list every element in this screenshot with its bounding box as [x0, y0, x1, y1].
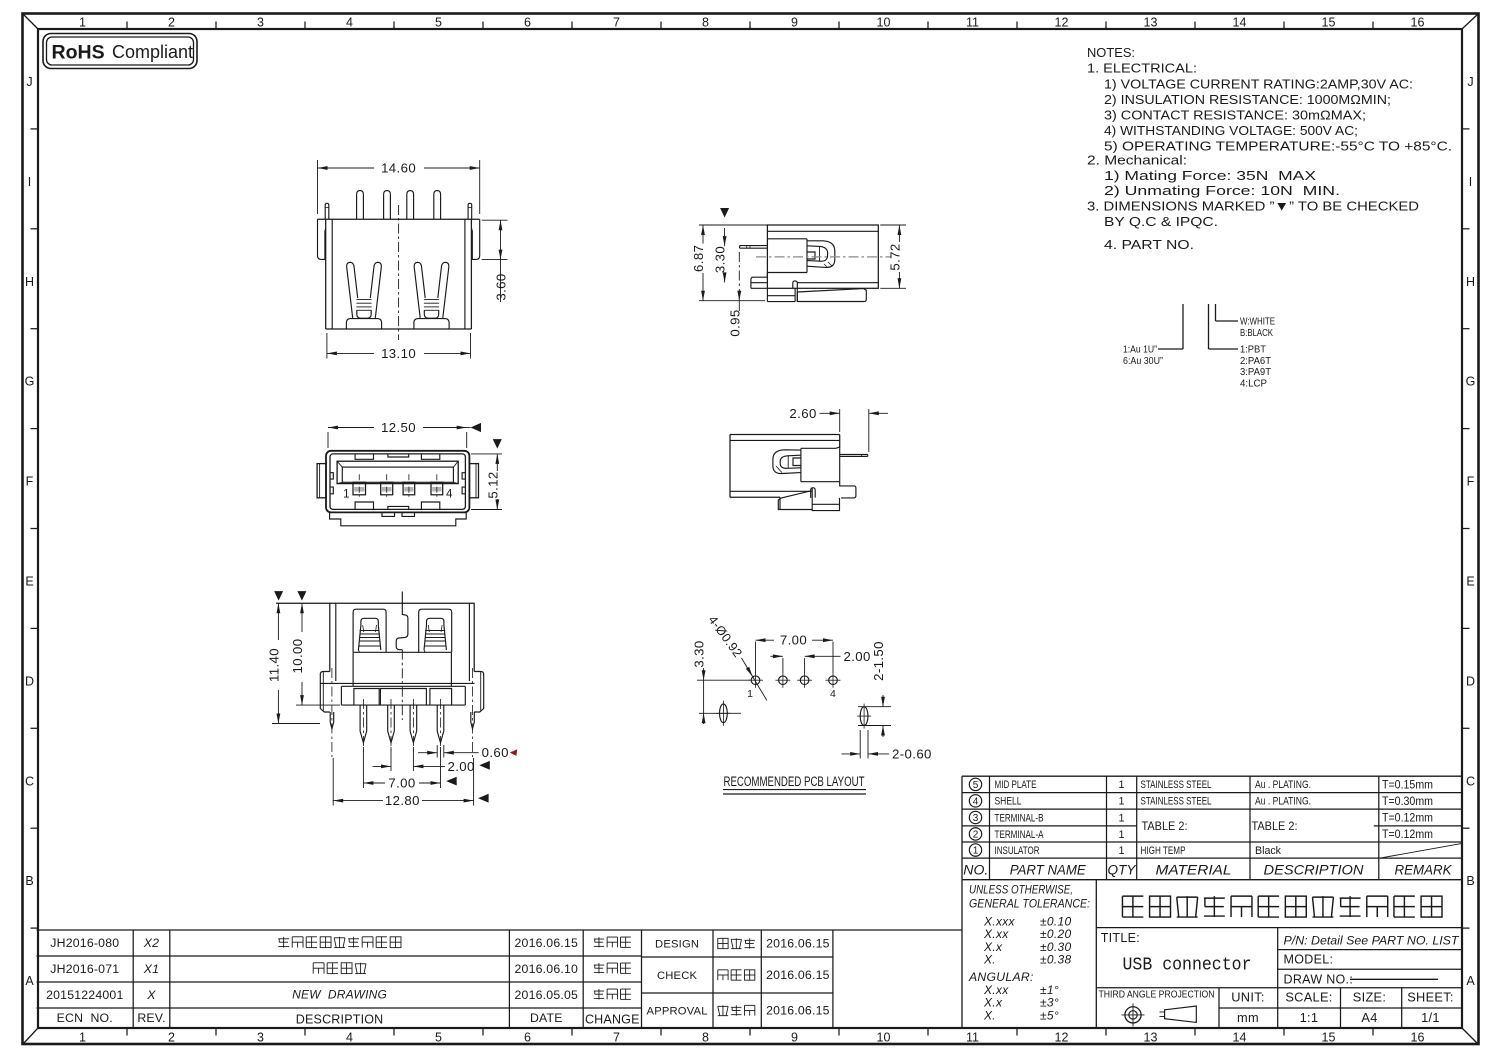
svg-text:2) INSULATION RESISTANCE: 1000: 2) INSULATION RESISTANCE: 1000MΩMIN;: [1104, 92, 1391, 107]
svg-text:H: H: [1466, 275, 1475, 289]
svg-text:2. Mechanical:: 2. Mechanical:: [1087, 153, 1187, 168]
svg-text:D: D: [25, 674, 34, 688]
svg-text:7.00: 7.00: [388, 776, 415, 791]
svg-text:F: F: [26, 475, 34, 489]
svg-text:NEW DRAWING: NEW DRAWING: [292, 987, 387, 1001]
svg-text:3.30: 3.30: [713, 246, 728, 273]
svg-text:12: 12: [1055, 16, 1069, 30]
svg-text:PART NAME: PART NAME: [1010, 863, 1087, 878]
svg-text:20151224001: 20151224001: [46, 988, 123, 1002]
svg-text:0.95: 0.95: [727, 309, 742, 336]
svg-text:12.50: 12.50: [381, 420, 416, 435]
svg-text:4: 4: [830, 688, 836, 700]
svg-text:8: 8: [702, 1031, 709, 1045]
svg-text:6: 6: [524, 16, 531, 30]
svg-text:MID PLATE: MID PLATE: [995, 779, 1037, 791]
svg-text:ECN NO.: ECN NO.: [57, 1011, 113, 1025]
svg-text:2:PA6T: 2:PA6T: [1240, 356, 1271, 367]
svg-text:P/N: Detail See PART NO. LIST: P/N: Detail See PART NO. LIST: [1284, 933, 1460, 947]
svg-text:UNIT:: UNIT:: [1231, 989, 1265, 1004]
svg-text:GENERAL TOLERANCE:: GENERAL TOLERANCE:: [969, 897, 1090, 911]
svg-text:5: 5: [973, 780, 979, 791]
svg-text:7.00: 7.00: [780, 633, 807, 648]
svg-text:2016.06.15: 2016.06.15: [766, 968, 830, 982]
svg-text:REV.: REV.: [137, 1011, 165, 1025]
svg-text:REMARK: REMARK: [1395, 863, 1453, 878]
svg-text:T=0.15mm: T=0.15mm: [1382, 779, 1433, 791]
svg-text:D: D: [1466, 674, 1475, 688]
svg-text:13: 13: [1144, 16, 1158, 30]
svg-text:3. DIMENSIONS MARKED ”▼” TO BE: 3. DIMENSIONS MARKED ”▼” TO BE CHECKED: [1087, 199, 1419, 214]
svg-text:10.00: 10.00: [290, 638, 305, 673]
svg-text:I: I: [1469, 175, 1472, 189]
svg-text:1:PBT: 1:PBT: [1240, 345, 1266, 356]
svg-text:5: 5: [435, 16, 442, 30]
svg-text:14.60: 14.60: [381, 161, 416, 176]
svg-text:10: 10: [877, 1031, 891, 1045]
svg-text:STAINLESS STEEL: STAINLESS STEEL: [1141, 796, 1212, 808]
svg-text:1: 1: [1118, 845, 1124, 857]
svg-text:W:WHITE: W:WHITE: [1240, 317, 1275, 328]
svg-text:2016.05.05: 2016.05.05: [515, 988, 579, 1002]
svg-text:1: 1: [1118, 812, 1124, 824]
svg-text:3) CONTACT RESISTANCE: 30mΩMAX: 3) CONTACT RESISTANCE: 30mΩMAX;: [1104, 108, 1366, 123]
svg-text:2) Unmating Force: 10N MIN.: 2) Unmating Force: 10N MIN.: [1104, 183, 1340, 198]
svg-text:11: 11: [966, 16, 979, 30]
svg-text:T=0.12mm: T=0.12mm: [1382, 813, 1433, 825]
svg-text:TABLE 2:: TABLE 2:: [1142, 821, 1188, 833]
svg-text:3:PA9T: 3:PA9T: [1240, 367, 1271, 378]
svg-text:Compliant: Compliant: [112, 42, 193, 62]
svg-text:4. PART NO.: 4. PART NO.: [1104, 237, 1194, 252]
svg-text:TERMINAL-A: TERMINAL-A: [995, 829, 1045, 841]
svg-text:11.40: 11.40: [266, 648, 281, 682]
svg-text:2-1.50: 2-1.50: [871, 641, 886, 681]
svg-text:3: 3: [257, 16, 264, 30]
svg-text:2-0.60: 2-0.60: [892, 746, 932, 761]
svg-text:SHEET:: SHEET:: [1407, 989, 1454, 1004]
svg-text:1: 1: [1118, 796, 1124, 808]
svg-text:B: B: [1466, 874, 1474, 888]
svg-text:2.60: 2.60: [789, 406, 816, 421]
svg-text:1: 1: [79, 1031, 86, 1045]
svg-text:0.60: 0.60: [482, 745, 509, 760]
svg-text:THIRD ANGLE PROJECTION: THIRD ANGLE PROJECTION: [1099, 989, 1215, 1000]
svg-text:12: 12: [1055, 1031, 1069, 1045]
svg-text:X2: X2: [143, 936, 159, 950]
svg-text:7: 7: [613, 1031, 620, 1045]
svg-text:RoHS: RoHS: [52, 42, 105, 64]
svg-text:3.60: 3.60: [493, 273, 508, 300]
svg-text:6.87: 6.87: [691, 245, 706, 272]
svg-text:1:Au 1U”: 1:Au 1U”: [1123, 345, 1158, 356]
svg-text:E: E: [1466, 575, 1474, 589]
svg-text:JH2016-071: JH2016-071: [50, 962, 119, 976]
svg-text:2: 2: [973, 830, 979, 841]
svg-text:5: 5: [435, 1031, 442, 1045]
svg-text:T=0.12mm: T=0.12mm: [1382, 829, 1433, 841]
svg-text:HIGH TEMP: HIGH TEMP: [1141, 845, 1186, 857]
svg-text:4) WITHSTANDING VOLTAGE: 500V: 4) WITHSTANDING VOLTAGE: 500V AC;: [1104, 123, 1358, 138]
svg-text:1: 1: [79, 16, 86, 30]
svg-text:2016.06.10: 2016.06.10: [515, 962, 579, 976]
svg-text:Au . PLATING.: Au . PLATING.: [1255, 796, 1311, 808]
svg-text:1: 1: [747, 688, 753, 700]
svg-text:11: 11: [966, 1031, 979, 1045]
svg-text:E: E: [25, 575, 33, 589]
svg-text:B:BLACK: B:BLACK: [1240, 328, 1273, 339]
svg-text:16: 16: [1411, 16, 1425, 30]
svg-text:DRAW NO.:: DRAW NO.:: [1284, 973, 1354, 987]
svg-text:1. ELECTRICAL:: 1. ELECTRICAL:: [1087, 61, 1197, 76]
svg-text:1: 1: [343, 488, 349, 500]
svg-text:15: 15: [1322, 16, 1336, 30]
svg-text:2016.06.15: 2016.06.15: [515, 936, 579, 950]
svg-text:C: C: [1466, 774, 1475, 788]
svg-text:STAINLESS STEEL: STAINLESS STEEL: [1141, 779, 1212, 791]
svg-text:16: 16: [1411, 1031, 1425, 1045]
svg-text:2.00: 2.00: [844, 649, 871, 664]
svg-text:8: 8: [702, 16, 709, 30]
svg-text:2016.06.15: 2016.06.15: [766, 1004, 830, 1018]
svg-text:B: B: [25, 874, 33, 888]
svg-text:4: 4: [346, 16, 353, 30]
svg-text:CHECK: CHECK: [657, 970, 697, 982]
svg-text:Au . PLATING.: Au . PLATING.: [1255, 779, 1311, 791]
svg-text:5) OPERATING TEMPERATURE:-55°C: 5) OPERATING TEMPERATURE:-55°C TO +85°C.: [1104, 139, 1452, 154]
svg-text:A4: A4: [1361, 1010, 1377, 1025]
svg-text:1) Mating Force: 35N MAX: 1) Mating Force: 35N MAX: [1104, 168, 1316, 183]
svg-text:UNLESS OTHERWISE,: UNLESS OTHERWISE,: [969, 883, 1073, 897]
svg-text:MODEL:: MODEL:: [1284, 952, 1334, 966]
svg-text:3: 3: [973, 813, 979, 824]
svg-text:RECOMMENDED PCB LAYOUT: RECOMMENDED PCB LAYOUT: [724, 774, 865, 789]
svg-text:X.: X.: [983, 953, 996, 967]
svg-text:ANGULAR:: ANGULAR:: [968, 970, 1034, 984]
svg-text:15: 15: [1322, 1031, 1336, 1045]
svg-text:DESIGN: DESIGN: [655, 939, 699, 951]
svg-text:4: 4: [973, 796, 979, 807]
svg-text:I: I: [28, 175, 31, 189]
svg-text:H: H: [25, 275, 34, 289]
svg-text:A: A: [1466, 974, 1475, 988]
svg-text:±0.38: ±0.38: [1040, 953, 1071, 967]
svg-text:13: 13: [1144, 1031, 1158, 1045]
svg-text:BY Q.C & IPQC.: BY Q.C & IPQC.: [1104, 214, 1218, 229]
svg-text:SHELL: SHELL: [995, 796, 1022, 808]
svg-text:INSULATOR: INSULATOR: [995, 845, 1040, 857]
svg-text:2016.06.15: 2016.06.15: [766, 937, 830, 951]
svg-text:4:LCP: 4:LCP: [1240, 378, 1267, 389]
svg-text:9: 9: [791, 1031, 798, 1045]
svg-text:SCALE:: SCALE:: [1285, 989, 1332, 1004]
svg-text:G: G: [1466, 375, 1476, 389]
svg-text:DATE: DATE: [530, 1011, 563, 1025]
svg-text:DESCRIPTION: DESCRIPTION: [1264, 863, 1364, 878]
svg-text:C: C: [25, 774, 34, 788]
svg-text:1/1: 1/1: [1421, 1010, 1440, 1025]
svg-text:6: 6: [524, 1031, 531, 1045]
svg-text:1) VOLTAGE CURRENT RATING:2AMP: 1) VOLTAGE CURRENT RATING:2AMP,30V AC:: [1104, 77, 1413, 92]
svg-text:2: 2: [168, 1031, 175, 1045]
svg-text:mm: mm: [1237, 1010, 1259, 1025]
svg-text:X1: X1: [143, 962, 159, 976]
svg-text:1:1: 1:1: [1300, 1010, 1319, 1025]
svg-text:6:Au 30U”: 6:Au 30U”: [1123, 356, 1164, 367]
svg-text:APPROVAL: APPROVAL: [647, 1006, 708, 1018]
svg-text:TITLE:: TITLE:: [1101, 931, 1140, 945]
svg-text:X.: X.: [983, 1008, 996, 1022]
svg-text:5.72: 5.72: [887, 243, 902, 270]
svg-text:1: 1: [1118, 779, 1124, 791]
svg-text:TERMINAL-B: TERMINAL-B: [995, 812, 1044, 824]
svg-text:X: X: [146, 988, 156, 1002]
svg-text:JH2016-080: JH2016-080: [50, 936, 119, 950]
svg-text:QTY: QTY: [1108, 863, 1138, 878]
svg-text:G: G: [25, 375, 35, 389]
svg-text:MATERIAL: MATERIAL: [1156, 863, 1232, 878]
svg-text:USB connector: USB connector: [1123, 954, 1252, 975]
svg-text:1: 1: [973, 846, 979, 857]
svg-text:NOTES:: NOTES:: [1087, 45, 1135, 60]
svg-text:13.10: 13.10: [381, 346, 416, 361]
svg-text:J: J: [26, 75, 32, 89]
svg-text:5.12: 5.12: [485, 471, 500, 498]
svg-text:TABLE 2:: TABLE 2:: [1252, 821, 1298, 833]
svg-text:3.30: 3.30: [692, 640, 707, 667]
svg-text:7: 7: [613, 16, 620, 30]
svg-text:NO.: NO.: [963, 863, 988, 878]
svg-text:CHANGE: CHANGE: [585, 1012, 640, 1026]
svg-text:DESCRIPTION: DESCRIPTION: [296, 1012, 384, 1026]
svg-text:4: 4: [346, 1031, 353, 1045]
svg-text:Black: Black: [1255, 845, 1282, 857]
svg-text:±5°: ±5°: [1040, 1008, 1059, 1022]
svg-text:T=0.30mm: T=0.30mm: [1382, 796, 1433, 808]
svg-text:F: F: [1467, 475, 1475, 489]
svg-text:4: 4: [446, 488, 453, 500]
svg-text:12.80: 12.80: [385, 793, 420, 808]
svg-text:2: 2: [168, 16, 175, 30]
svg-text:1: 1: [1118, 829, 1124, 841]
svg-text:A: A: [25, 974, 34, 988]
svg-text:SIZE:: SIZE:: [1353, 989, 1387, 1004]
svg-text:2.00: 2.00: [448, 759, 475, 774]
svg-text:14: 14: [1233, 16, 1247, 30]
svg-text:3: 3: [257, 1031, 264, 1045]
svg-text:10: 10: [877, 16, 891, 30]
svg-text:9: 9: [791, 16, 798, 30]
svg-text:14: 14: [1233, 1031, 1247, 1045]
svg-text:J: J: [1467, 75, 1473, 89]
